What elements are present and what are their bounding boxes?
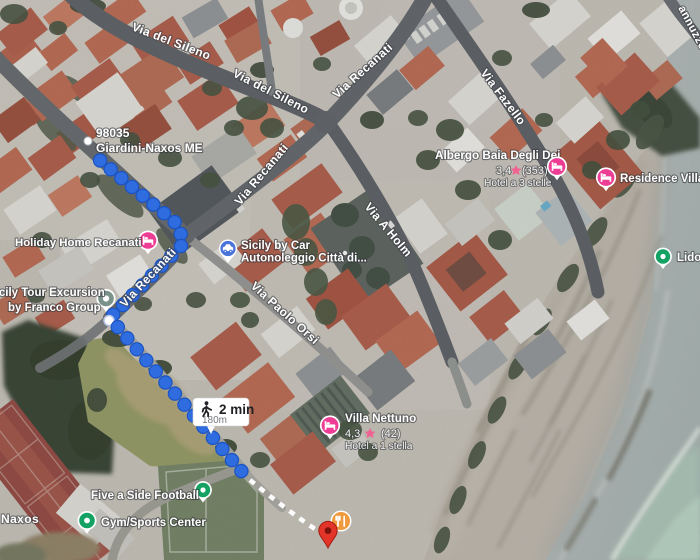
svg-text:Giardini-Naxos ME: Giardini-Naxos ME [96,141,203,155]
svg-text:Sicily Tour Excursion: Sicily Tour Excursion [0,287,105,299]
svg-text:Holiday Home Recanati: Holiday Home Recanati [15,237,142,249]
svg-text:Autonoleggio Città di...: Autonoleggio Città di... [241,253,367,265]
svg-text:Residence Villa: Residence Villa [620,173,700,185]
svg-text:Naxos: Naxos [1,512,39,526]
svg-text:Gym/Sports Center: Gym/Sports Center [101,517,206,529]
svg-text:Hotel a 1 stella: Hotel a 1 stella [345,441,413,452]
svg-text:4,3: 4,3 [345,428,360,440]
svg-text:(42): (42) [381,428,401,440]
svg-text:Sicily by Car: Sicily by Car [241,240,311,252]
svg-text:Five a Side Football: Five a Side Football [91,490,199,502]
svg-text:Albergo Baia Degli Dei: Albergo Baia Degli Dei [435,149,560,162]
svg-text:Hotel a 3 stelle: Hotel a 3 stelle [484,178,552,189]
svg-text:Lido: Lido [677,252,700,264]
svg-text:by Franco Group: by Franco Group [8,302,101,314]
svg-text:180m: 180m [202,415,227,426]
svg-text:3,4: 3,4 [496,165,511,177]
svg-text:98035: 98035 [96,126,130,140]
svg-text:(353): (353) [522,165,548,177]
svg-text:Villa Nettuno: Villa Nettuno [345,412,416,425]
